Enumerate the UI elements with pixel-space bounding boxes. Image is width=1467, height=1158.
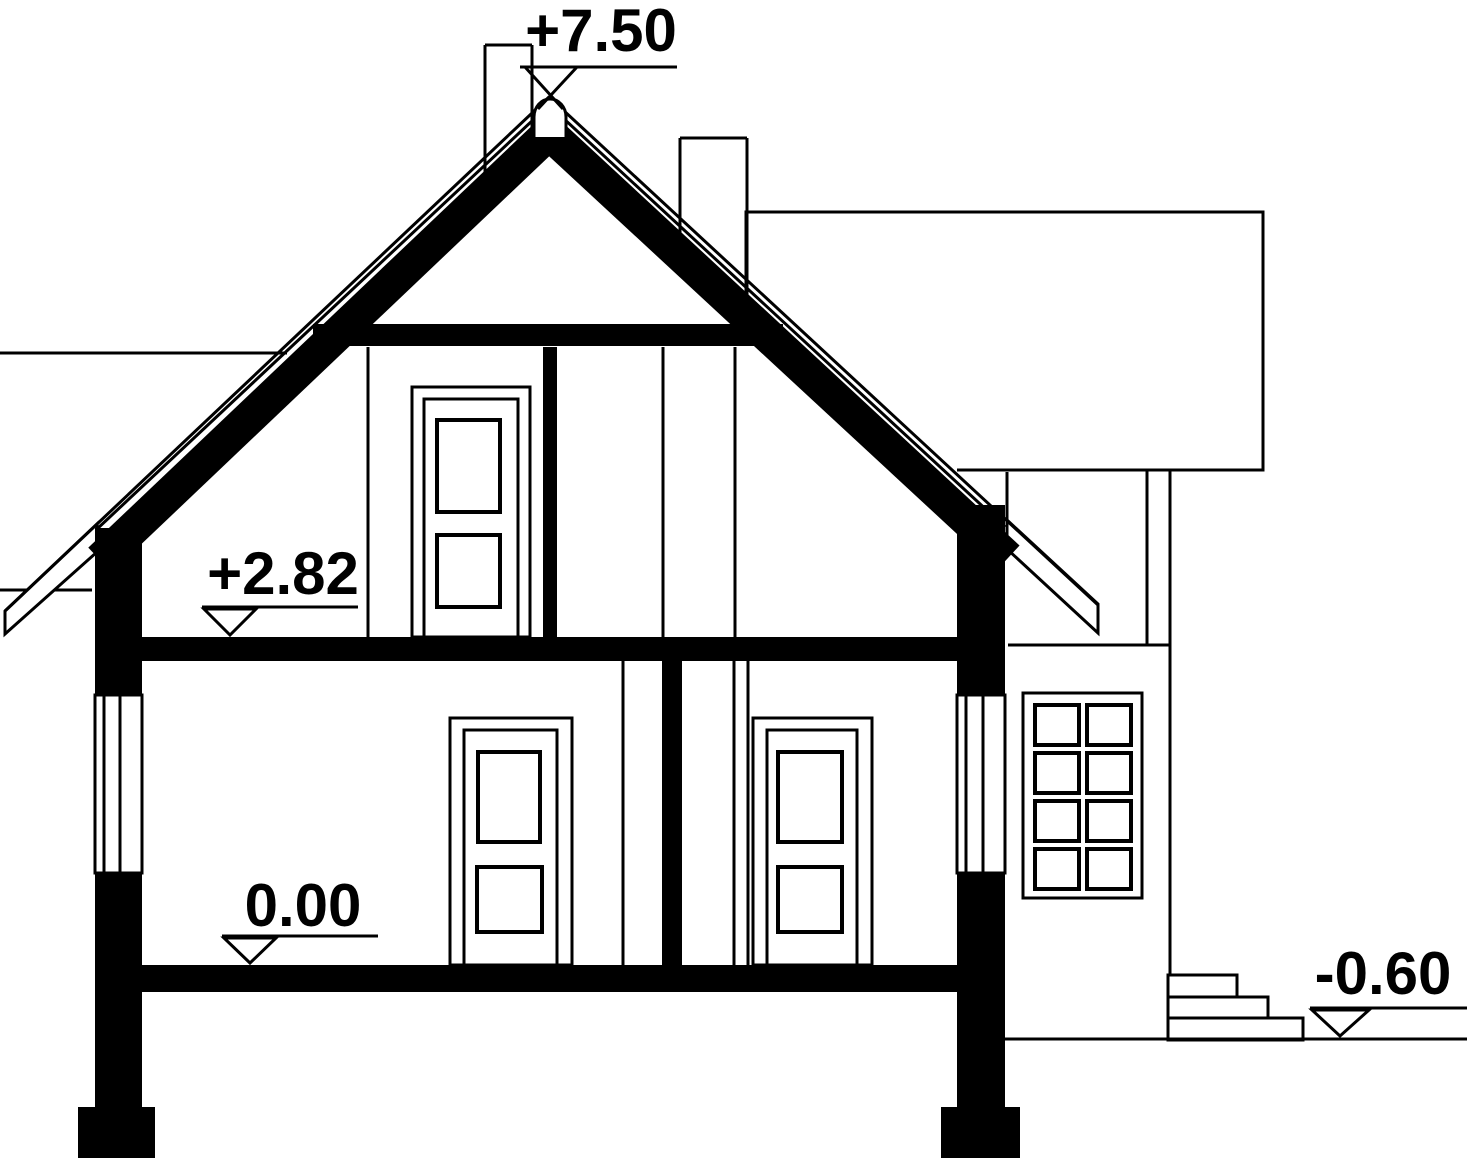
elevation-marker-ridge: +7.50 — [520, 0, 677, 109]
window-pane — [1087, 849, 1131, 889]
collar-beam-ceiling — [313, 324, 783, 346]
right-footing — [941, 1107, 1020, 1158]
marker-label: -0.60 — [1315, 940, 1452, 1007]
interior-wall-ground-floor — [662, 661, 682, 965]
marker-label: +7.50 — [525, 0, 677, 64]
door-panel — [437, 420, 500, 512]
ridge-cap — [534, 99, 566, 137]
marker-label: 0.00 — [245, 872, 362, 939]
marker-triangle — [204, 609, 256, 635]
ground-floor-slab — [95, 965, 1005, 992]
right-eave-overhang — [1007, 520, 1098, 633]
elevation-marker-attic-floor: +2.82 — [202, 540, 359, 635]
right-wing-roof-fill — [746, 212, 1263, 470]
door-panel — [778, 867, 842, 932]
window-pane — [1035, 753, 1079, 793]
house-cross-section-drawing: +7.50 +2.82 0.00 -0.60 — [0, 0, 1467, 1158]
ground-floor-door-left — [450, 718, 572, 965]
right-wing-window — [1023, 693, 1142, 898]
left-wall-window-section — [95, 695, 142, 873]
door-panel — [778, 752, 842, 842]
window-pane — [1087, 705, 1131, 745]
marker-triangle — [1312, 1010, 1369, 1036]
step — [1168, 1018, 1303, 1040]
ground-floor-door-right — [753, 718, 872, 965]
entry-steps — [1168, 975, 1303, 1040]
window-pane — [1087, 801, 1131, 841]
marker-label: +2.82 — [207, 540, 359, 607]
interior-wall-attic — [543, 347, 557, 637]
left-footing — [78, 1107, 155, 1158]
elevation-marker-ground-floor: 0.00 — [222, 872, 378, 963]
door-panel — [437, 535, 500, 607]
window-pane — [1035, 849, 1079, 889]
attic-floor-slab — [95, 637, 1005, 661]
window-section-opening — [957, 695, 1005, 873]
marker-triangle — [224, 938, 276, 963]
window-pane — [1035, 705, 1079, 745]
attic-door — [412, 387, 530, 637]
elevation-marker-terrain: -0.60 — [1310, 940, 1467, 1036]
section-drawing-svg: +7.50 +2.82 0.00 -0.60 — [0, 0, 1467, 1158]
step — [1168, 975, 1237, 997]
step — [1168, 997, 1268, 1018]
ground-floor-interior — [450, 661, 872, 965]
window-pane — [1035, 801, 1079, 841]
right-wall-window-section — [957, 695, 1005, 873]
door-panel — [477, 867, 542, 932]
left-eave-overhang — [5, 524, 97, 634]
door-panel — [478, 752, 540, 842]
window-pane — [1087, 753, 1131, 793]
